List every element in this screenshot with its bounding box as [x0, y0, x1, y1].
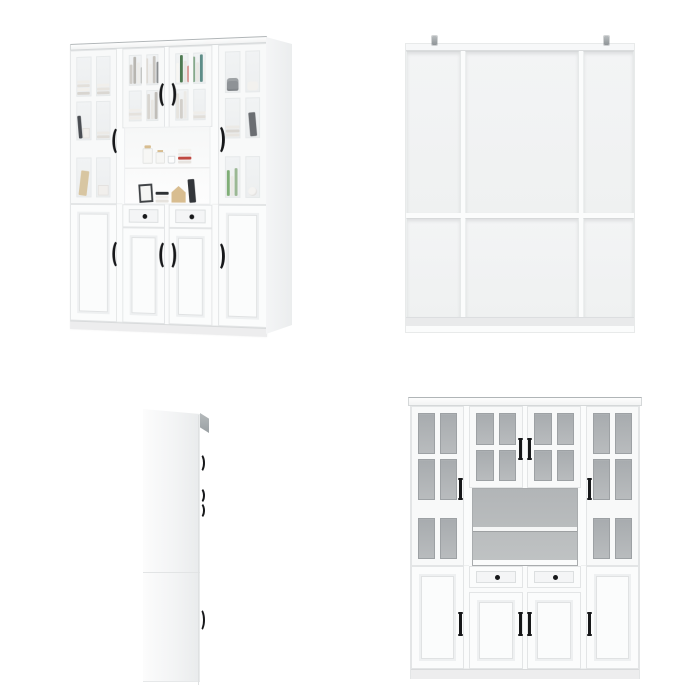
back-top-rail	[406, 44, 634, 51]
stacked-book	[156, 196, 169, 199]
glass-door-right	[218, 43, 267, 205]
door-pull	[519, 612, 522, 636]
book-spine	[193, 57, 195, 83]
book	[77, 116, 82, 139]
door-pull	[459, 612, 462, 636]
product-image-grid	[0, 0, 700, 700]
drawer-knob	[553, 575, 558, 580]
plinth	[411, 669, 639, 679]
glass-pane	[245, 97, 260, 139]
door-pull	[588, 612, 591, 636]
book-spines	[129, 56, 141, 84]
book-spines	[176, 91, 186, 119]
book-stack	[97, 83, 110, 94]
stacked-book	[178, 148, 191, 151]
glass-pane	[76, 101, 91, 141]
glass-pane	[418, 459, 435, 500]
back-panel	[465, 51, 579, 213]
lower-door-right	[218, 205, 267, 328]
front-body	[410, 406, 640, 679]
glass-pane	[225, 157, 240, 198]
back-panel	[465, 218, 579, 317]
book-spine	[156, 62, 158, 83]
glass-pane	[225, 97, 240, 139]
back-panel	[406, 218, 461, 317]
back-base-strip	[406, 317, 634, 326]
book-stack	[178, 148, 191, 163]
glass-pane	[193, 89, 206, 121]
lower-door-left	[70, 204, 117, 322]
lower-door-mid-right	[527, 592, 581, 669]
glass-pane	[499, 413, 517, 445]
book-spine	[200, 54, 203, 82]
glass-cup	[168, 155, 176, 163]
drawer-right	[527, 566, 581, 588]
drawer-row	[469, 566, 581, 588]
side-door-pull	[196, 453, 205, 473]
back-panel	[583, 218, 634, 317]
hutch-upper-section	[70, 43, 267, 205]
book-spine	[151, 100, 154, 119]
stacked-book	[77, 91, 90, 94]
decor-sphere	[248, 187, 257, 196]
stacked-book	[178, 160, 191, 163]
glass-pane	[76, 158, 91, 198]
book-spines	[146, 56, 159, 84]
glass-pane	[193, 52, 206, 84]
glass-pane	[499, 450, 517, 482]
drawer-left	[122, 204, 165, 228]
glass-pane	[96, 100, 111, 140]
wooden-house-ornament	[171, 186, 185, 203]
stacked-book	[97, 132, 110, 135]
stacked-book	[193, 115, 206, 118]
cabinet-perspective-wrap	[70, 36, 267, 336]
stacked-book	[178, 152, 191, 155]
book-stack	[193, 111, 206, 118]
door-pull	[519, 438, 522, 460]
lower-door-mid-left	[122, 227, 165, 324]
stacked-book	[77, 80, 90, 83]
book-spine	[137, 62, 140, 83]
door-mid-rail	[593, 505, 632, 513]
glass-pane	[175, 53, 188, 85]
glass-pane	[593, 518, 610, 559]
open-shelf-lower	[125, 167, 209, 204]
book-stack	[97, 132, 110, 139]
stacked-book	[97, 87, 110, 90]
lidded-canister	[156, 151, 165, 163]
glass-pane	[245, 50, 260, 92]
glass-door-mid-right	[527, 406, 581, 488]
glass-pane	[76, 56, 91, 96]
stacked-book	[156, 192, 169, 195]
picture-frame	[138, 184, 153, 203]
back-panel-body	[405, 43, 635, 333]
compartment-sill	[473, 560, 577, 565]
stacked-book	[97, 136, 110, 139]
book-spines	[193, 54, 206, 82]
door-pull	[528, 612, 531, 636]
wood-board	[78, 170, 89, 196]
glass-pane	[96, 56, 111, 96]
door-mid-rail	[418, 505, 457, 513]
stacked-book	[226, 134, 240, 137]
lower-door-mid-right	[169, 228, 213, 326]
drawer-knob	[189, 214, 194, 219]
open-shelf-compartment	[124, 126, 210, 205]
book-spine	[235, 168, 238, 196]
stacked-book	[129, 109, 141, 112]
glass-pane	[476, 413, 494, 445]
book-spines	[147, 92, 157, 119]
folded-cloth	[247, 81, 258, 90]
view-front-styled	[57, 36, 297, 342]
stacked-book	[226, 126, 240, 129]
book	[188, 179, 197, 203]
book	[248, 112, 257, 137]
book-stack	[226, 126, 240, 137]
stacked-book	[97, 83, 110, 86]
hutch-middle-column	[122, 45, 212, 205]
middle-glass-doors	[469, 406, 581, 488]
drawer-left	[469, 566, 523, 588]
book-spine	[203, 60, 205, 82]
book-spine	[180, 55, 183, 82]
anti-tip-bracket	[432, 36, 437, 45]
glass-pane	[175, 89, 188, 121]
back-panel-grid	[406, 51, 634, 317]
book-spine	[154, 92, 157, 119]
anti-tip-bracket	[604, 36, 609, 45]
book-spine	[196, 62, 199, 82]
book-spines	[175, 55, 188, 83]
glass-pane	[534, 413, 552, 445]
back-panel	[583, 51, 634, 213]
glass-pane	[146, 54, 159, 85]
glass-door-mid-left	[122, 47, 165, 128]
side-cornice-wedge	[200, 413, 209, 433]
stacked-book	[77, 88, 90, 91]
side-door-pull	[196, 502, 205, 519]
glass-pane	[245, 156, 260, 198]
book-spine	[184, 61, 187, 83]
glass-pane	[440, 459, 457, 500]
book-spine	[149, 64, 152, 83]
book-stack	[156, 192, 169, 203]
glass-door-right	[586, 406, 639, 566]
drawer-row	[122, 204, 212, 228]
door-pull	[588, 478, 591, 500]
stacked-book	[193, 111, 206, 114]
stacked-book	[156, 200, 169, 203]
view-side	[143, 409, 213, 685]
book-spine	[227, 170, 230, 196]
hutch-middle-column	[469, 406, 581, 566]
glass-pane	[440, 518, 457, 559]
stacked-book	[129, 116, 141, 119]
storage-box	[98, 185, 109, 196]
book-spine	[146, 58, 148, 83]
door-mid-rail	[225, 143, 260, 151]
stacked-book	[226, 130, 240, 133]
book-spine	[147, 94, 150, 119]
glass-pane	[615, 518, 632, 559]
stacked-book	[97, 91, 110, 94]
glass-pane	[615, 413, 632, 454]
open-shelf-compartment	[472, 488, 578, 566]
book-spine	[180, 99, 183, 119]
glass-pane	[557, 450, 575, 482]
glass-pane	[129, 90, 141, 121]
glass-door-left	[411, 406, 464, 566]
glass-door-left	[70, 49, 117, 204]
view-back	[405, 43, 635, 333]
lower-door-mid-left	[469, 592, 523, 669]
book-spine	[153, 56, 156, 83]
stacked-book	[178, 156, 191, 159]
hutch-upper-section	[411, 406, 639, 566]
stacked-book	[77, 84, 90, 87]
book-spine	[176, 93, 179, 118]
view-front-elevation	[410, 397, 640, 688]
glass-pane	[615, 459, 632, 500]
cabinet-front-face	[70, 36, 267, 336]
door-pull	[112, 126, 122, 155]
glass-pane	[146, 90, 159, 121]
book-spine	[231, 176, 234, 196]
lower-door-right	[586, 566, 639, 669]
book-stack	[129, 109, 141, 120]
glass-pane	[476, 450, 494, 482]
book-spine	[184, 91, 187, 118]
glass-pane	[593, 459, 610, 500]
book-stack	[77, 80, 90, 95]
glass-door-mid-left	[469, 406, 523, 488]
open-shelf-upper	[125, 127, 209, 167]
glass-pane	[534, 450, 552, 482]
storage-basket	[227, 78, 238, 91]
side-door-pull	[196, 608, 205, 632]
glass-pane	[593, 413, 610, 454]
side-slab	[143, 409, 200, 682]
glass-pane	[129, 55, 141, 86]
storage-box	[82, 128, 89, 139]
door-pull	[112, 240, 122, 269]
base-middle-column	[469, 566, 581, 669]
lidded-jar	[143, 148, 153, 164]
drawer-right	[169, 204, 213, 228]
book-spines	[227, 168, 238, 196]
back-panel	[406, 51, 461, 213]
base-lower-section	[411, 566, 639, 669]
book-spine	[134, 57, 137, 84]
glass-pane	[96, 158, 111, 198]
glass-pane	[225, 51, 240, 93]
drawer-knob	[143, 214, 148, 219]
glass-pane	[418, 413, 435, 454]
stacked-book	[129, 113, 141, 116]
lower-middle-doors	[469, 592, 581, 669]
shelf-board	[473, 527, 577, 532]
glass-pane	[557, 413, 575, 445]
glass-pane	[440, 413, 457, 454]
lower-door-left	[411, 566, 464, 669]
drawer-knob	[495, 575, 500, 580]
book-spine	[176, 63, 179, 83]
cabinet-top-cornice	[408, 397, 642, 406]
door-mid-rail	[76, 145, 110, 153]
book-spine	[130, 65, 133, 84]
glass-pane	[418, 518, 435, 559]
door-pull	[459, 478, 462, 500]
door-pull	[528, 438, 531, 460]
cabinet-side-panel	[266, 37, 292, 334]
side-seam	[143, 572, 200, 573]
